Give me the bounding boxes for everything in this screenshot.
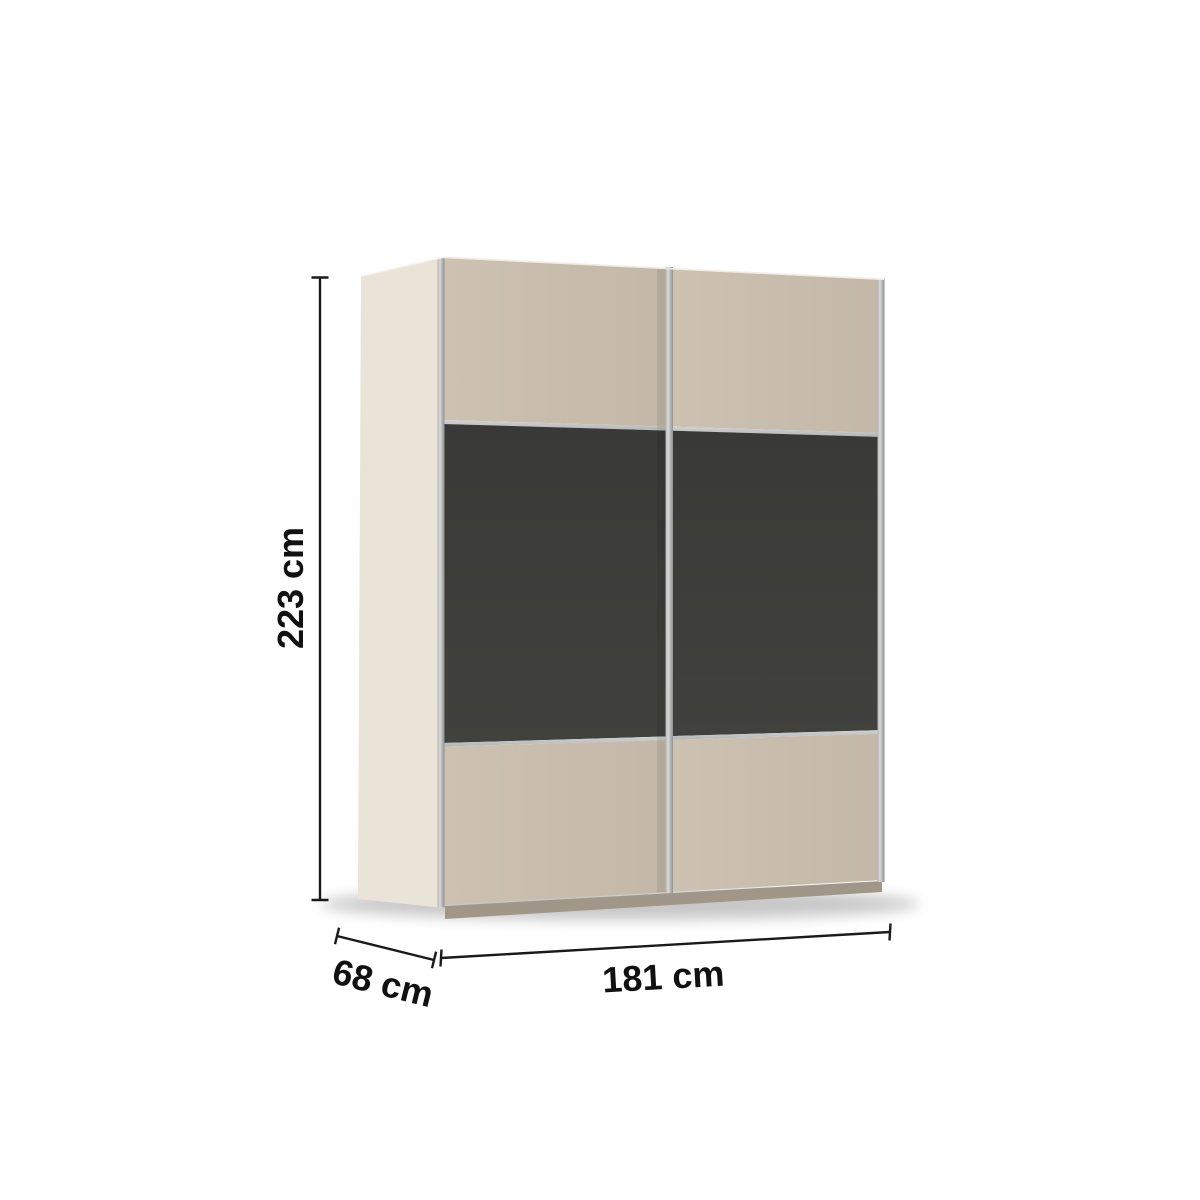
wardrobe — [320, 257, 920, 920]
width-dimension-line — [441, 932, 890, 958]
right-door-top-panel — [666, 269, 884, 433]
width-dimension-label: 181 cm — [601, 953, 725, 1001]
center-door-frame-strip — [666, 267, 674, 893]
right-door — [666, 269, 884, 892]
left-door-top-panel — [443, 258, 668, 427]
right-door-frame-strip — [878, 279, 885, 883]
left-door — [443, 258, 668, 905]
product-dimension-diagram: 223 cm 68 cm 181 cm — [0, 0, 1200, 1200]
right-door-bottom-panel — [666, 734, 884, 893]
width-dimension-tick-right — [890, 924, 891, 941]
height-dimension: 223 cm — [270, 278, 329, 901]
width-dimension: 181 cm — [441, 924, 891, 1001]
door-overlap-shadow — [657, 269, 666, 892]
left-door-frame-strip — [438, 258, 445, 908]
depth-dimension: 68 cm — [329, 928, 438, 1015]
width-dimension-tick-left — [441, 950, 442, 967]
side-panel — [358, 258, 443, 908]
height-dimension-label: 223 cm — [270, 527, 311, 649]
left-door-bottom-panel — [443, 740, 668, 905]
right-door-middle-panel — [666, 431, 884, 737]
left-door-middle-panel — [443, 424, 668, 743]
wardrobe-dimension-illustration: 223 cm 68 cm 181 cm — [0, 0, 1200, 1200]
depth-dimension-label: 68 cm — [329, 951, 438, 1015]
